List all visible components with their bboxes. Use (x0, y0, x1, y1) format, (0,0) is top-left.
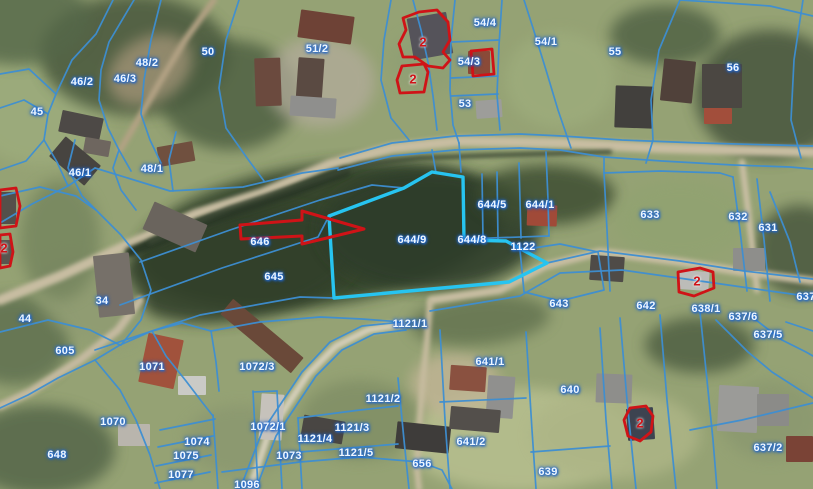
parcel-label-54-4[interactable]: 54/4 (474, 17, 497, 29)
parcel-label-46-2[interactable]: 46/2 (71, 76, 94, 88)
parcel-label-637[interactable]: 637 (796, 291, 813, 303)
parcel-label-1121-1[interactable]: 1121/1 (393, 318, 428, 330)
parcel-label-646[interactable]: 646 (250, 236, 269, 248)
parcel-label-1121-2[interactable]: 1121/2 (366, 393, 401, 405)
parcel-label-1070[interactable]: 1070 (100, 416, 126, 428)
parcel-label-56[interactable]: 56 (727, 62, 740, 74)
parcel-label-1121-4[interactable]: 1121/4 (298, 433, 333, 445)
parcel-label-34[interactable]: 34 (96, 295, 109, 307)
highlight-count-label-2[interactable]: 2 (409, 72, 416, 87)
parcel-label-55[interactable]: 55 (609, 46, 622, 58)
parcel-label-1073[interactable]: 1073 (276, 450, 302, 462)
cadastral-map-viewport[interactable]: 48/246/246/3455051/254/454/354/153555646… (0, 0, 813, 489)
parcel-label-1072-1[interactable]: 1072/1 (250, 421, 285, 433)
parcel-label-631[interactable]: 631 (758, 222, 777, 234)
parcel-label-1071[interactable]: 1071 (139, 361, 165, 373)
parcel-label-638-1[interactable]: 638/1 (691, 303, 720, 315)
parcel-label-637-6[interactable]: 637/6 (728, 311, 757, 323)
parcel-label-1077[interactable]: 1077 (168, 469, 194, 481)
parcel-label-648[interactable]: 648 (47, 449, 66, 461)
parcel-label-1072-3[interactable]: 1072/3 (239, 361, 274, 373)
parcel-label-44[interactable]: 44 (19, 313, 32, 325)
parcel-label-1075[interactable]: 1075 (173, 450, 199, 462)
parcel-label-644-1[interactable]: 644/1 (525, 199, 554, 211)
parcel-label-46-3[interactable]: 46/3 (114, 73, 137, 85)
parcel-label-640[interactable]: 640 (560, 384, 579, 396)
parcel-label-644-8[interactable]: 644/8 (457, 234, 486, 246)
parcel-label-637-5[interactable]: 637/5 (753, 329, 782, 341)
parcel-label-605[interactable]: 605 (55, 345, 74, 357)
parcel-label-641-2[interactable]: 641/2 (456, 436, 485, 448)
parcel-label-1074[interactable]: 1074 (184, 436, 210, 448)
parcel-label-644-5[interactable]: 644/5 (477, 199, 506, 211)
parcel-label-645[interactable]: 645 (264, 271, 283, 283)
parcel-label-1096[interactable]: 1096 (234, 479, 260, 489)
parcel-label-1122[interactable]: 1122 (510, 241, 535, 253)
parcel-label-1121-3[interactable]: 1121/3 (335, 422, 370, 434)
parcel-label-45[interactable]: 45 (31, 106, 44, 118)
highlight-count-label-2[interactable]: 2 (693, 274, 700, 289)
highlight-count-label-2[interactable]: 2 (636, 416, 643, 431)
parcel-label-54-3[interactable]: 54/3 (458, 56, 481, 68)
parcel-label-637-2[interactable]: 637/2 (753, 442, 782, 454)
parcel-label-656[interactable]: 656 (412, 458, 431, 470)
highlight-count-label-2[interactable]: 2 (0, 241, 7, 256)
parcel-label-642[interactable]: 642 (636, 300, 655, 312)
parcel-label-50[interactable]: 50 (202, 46, 215, 58)
parcel-label-54-1[interactable]: 54/1 (535, 36, 558, 48)
parcel-label-643[interactable]: 643 (549, 298, 568, 310)
parcel-label-644-9[interactable]: 644/9 (397, 234, 426, 246)
parcel-label-46-1[interactable]: 46/1 (69, 167, 92, 179)
highlight-count-label-2[interactable]: 2 (419, 35, 426, 50)
parcel-label-633[interactable]: 633 (640, 209, 659, 221)
parcel-label-632[interactable]: 632 (728, 211, 747, 223)
parcel-label-51-2[interactable]: 51/2 (306, 43, 329, 55)
parcel-labels-layer: 48/246/246/3455051/254/454/354/153555646… (0, 0, 813, 489)
parcel-label-639[interactable]: 639 (538, 466, 557, 478)
parcel-label-48-2[interactable]: 48/2 (136, 57, 159, 69)
parcel-label-1121-5[interactable]: 1121/5 (339, 447, 374, 459)
parcel-label-48-1[interactable]: 48/1 (141, 163, 164, 175)
parcel-label-641-1[interactable]: 641/1 (475, 356, 504, 368)
parcel-label-53[interactable]: 53 (459, 98, 472, 110)
